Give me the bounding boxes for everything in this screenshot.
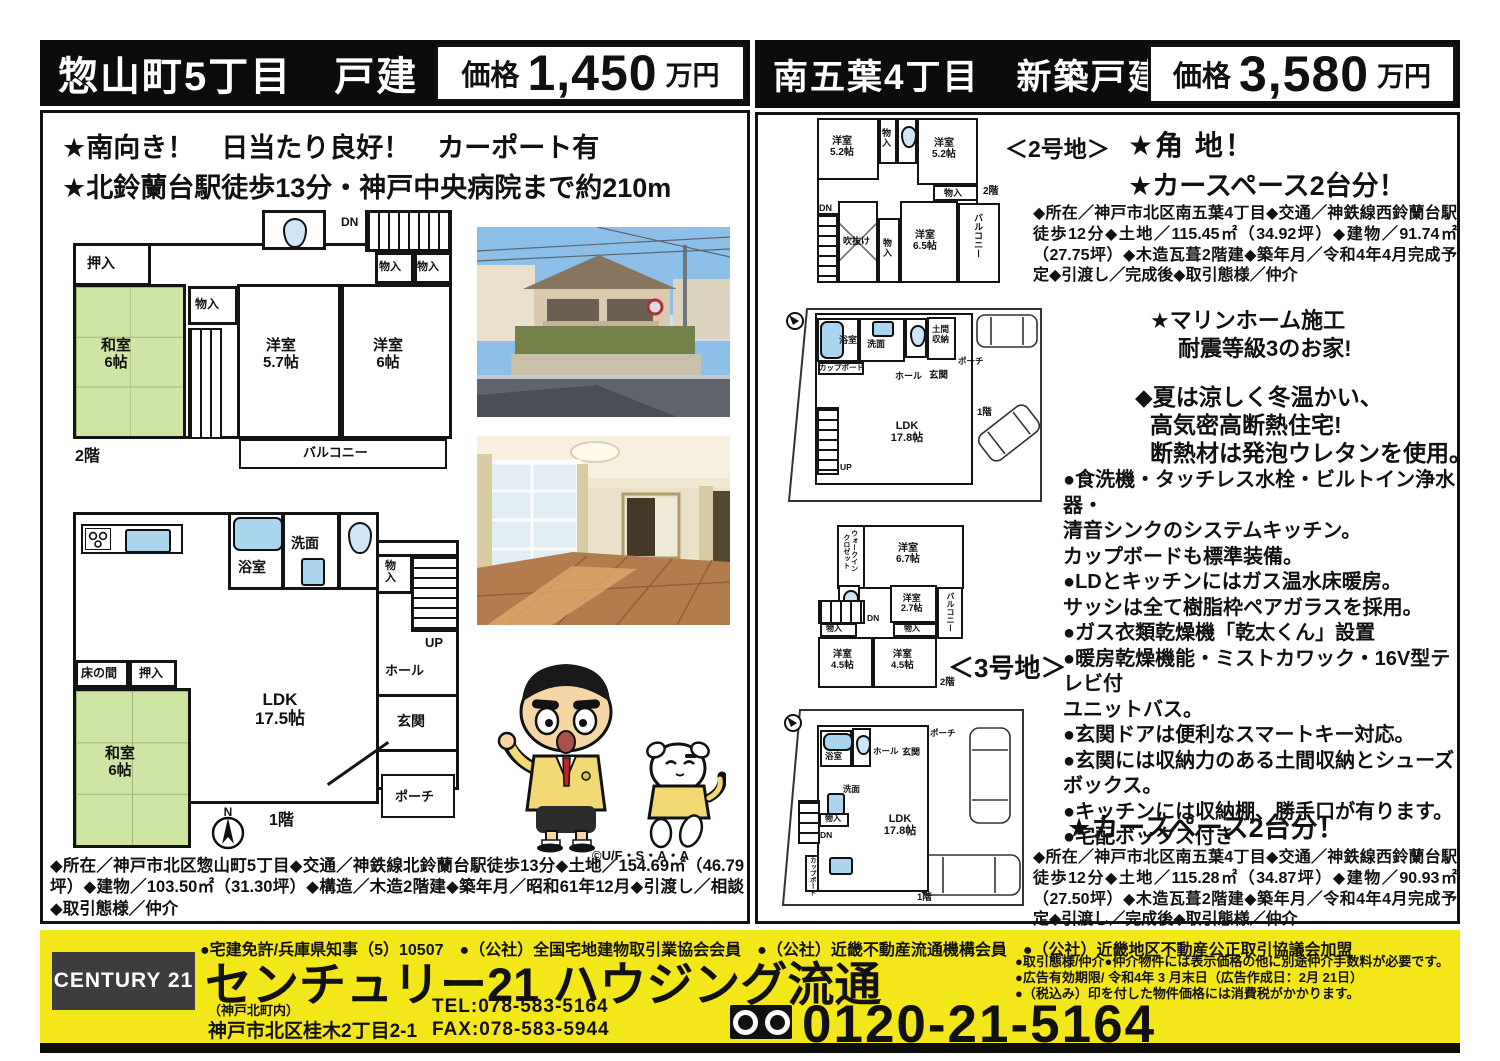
room-label: DN xyxy=(341,216,358,229)
room-label: 吹抜け xyxy=(843,236,870,246)
flyer-page: 惣山町5丁目 戸建 価格 1,450 万円 南五葉4丁目 新築戸建 価格 3,5… xyxy=(0,0,1500,1061)
stairs-up xyxy=(411,554,459,632)
room-label: 物入 xyxy=(904,625,920,634)
stairs-down xyxy=(798,800,820,844)
interior-photo xyxy=(477,436,730,625)
note-line: ●取引態様/仲介●仲介物件には表示価格の他に別途仲介手数料が必要です。 xyxy=(1015,954,1463,970)
room-label: 和室 6帖 xyxy=(101,338,131,372)
floor-tag: 1階 xyxy=(269,812,294,830)
right-property-title: 南五葉4丁目 新築戸建 xyxy=(755,49,1164,100)
right-price-label: 価格 xyxy=(1173,53,1231,95)
stove-icon xyxy=(85,528,111,550)
freedial-number: 0120-21-5164 xyxy=(802,994,1156,1055)
room-label: 洋室 6帖 xyxy=(373,338,403,372)
floor-tag: 1階 xyxy=(917,893,932,904)
stairs-up xyxy=(817,407,839,475)
room-label: バルコニー xyxy=(973,213,983,258)
feature-bullet-list: ●食洗機・タッチレス水栓・ビルトイン浄水器・ 清音シンクのシステムキッチン。 カ… xyxy=(1063,468,1463,851)
builder-line2: 耐震等級3のお家! xyxy=(1178,331,1352,363)
room-label: 洗面 xyxy=(867,339,885,349)
bullet-line: サッシは全て樹脂枠ペアガラスを採用。 xyxy=(1063,596,1463,622)
floorplan-lot3-1f: 浴室 ホール 玄関 ポーチ 洗面 物入 DN カップボード LDK 17.8帖 … xyxy=(775,705,1030,910)
office-address: 神戸市北区桂木2丁目2-1 xyxy=(208,1016,417,1043)
vanity-icon xyxy=(872,321,894,337)
room-label: ポーチ xyxy=(395,790,434,805)
stairs-hatch xyxy=(188,328,222,439)
room-label: 床の間 xyxy=(81,667,117,680)
century21-logo: CENTURY 21 xyxy=(52,952,195,1010)
note-line: ●広告有効期限/ 令和4年 3 月末日（広告作成日：2月 21日） xyxy=(1015,970,1463,986)
bullet-line: ●LDとキッチンにはガス温水床暖房。 xyxy=(1063,570,1463,596)
room-label: 洋室 5.2帖 xyxy=(830,136,854,158)
room-label: 玄関 xyxy=(397,714,425,730)
lot2-tag: ＜2号地＞ xyxy=(1005,130,1110,164)
room-label: 洋室 4.5帖 xyxy=(891,650,914,671)
room-label: ポーチ xyxy=(930,729,956,739)
room-label: ウォークイン クロゼット xyxy=(842,530,858,572)
floorplan-lot2-2f: 洋室 5.2帖 物 入 洋室 5.2帖 物入 2階 DN 吹抜け 物 入 洋室 … xyxy=(817,118,1007,288)
bullet-line: ●ガス衣類乾燥機「乾太くん」設置 xyxy=(1063,621,1463,647)
room-label: 洗面 xyxy=(843,785,860,795)
room-label: 物入 xyxy=(944,188,962,198)
left-price-box: 価格 1,450 万円 xyxy=(435,44,746,102)
room-label: 洋室 4.5帖 xyxy=(831,650,854,671)
room-label: バルコニー xyxy=(945,592,954,632)
stairs-down xyxy=(365,210,452,252)
bullet-line: ●玄関ドアは便利なスマートキー対応。 xyxy=(1063,723,1463,749)
stairs-down xyxy=(817,213,838,283)
mascot-characters xyxy=(486,648,726,853)
room-label: 物入 xyxy=(825,815,841,824)
room-label: 洋室 6.7帖 xyxy=(896,543,920,565)
freedial-icon xyxy=(730,1005,792,1039)
room-label: DN xyxy=(820,831,832,841)
lot3-tag: ＜3号地＞ xyxy=(948,648,1066,685)
floorplan-left-2f: DN 押入 和室 6帖 物入 洋室 5.7帖 洋室 6帖 物入 物入 バルコニー… xyxy=(73,210,459,472)
room-label: 物 入 xyxy=(385,560,396,585)
corner-lot-headline: ★角 地！ xyxy=(1128,124,1255,164)
bullet-line: ユニットバス。 xyxy=(1063,698,1463,724)
room-label: UP xyxy=(425,636,443,651)
room-label: ホール xyxy=(873,747,899,757)
floor-tag: 2階 xyxy=(75,448,100,466)
sink-icon xyxy=(829,857,853,875)
lot2-details: ◆所在／神戸市北区南五葉4丁目◆交通／神鉄線西鈴蘭台駅徒歩12分◆土地／115.… xyxy=(1033,204,1457,287)
bullet-line: ●暖房乾燥機能・ミストカワック・16V型テレビ付 xyxy=(1063,647,1463,698)
room-label: 物入 xyxy=(379,261,401,273)
fax-number: FAX:078-583-5944 xyxy=(432,1019,610,1041)
insulation-line3: 断熱材は発泡ウレタンを使用。 xyxy=(1150,434,1472,468)
room-label: 玄関 xyxy=(929,371,948,382)
right-price-box: 価格 3,580 万円 xyxy=(1148,44,1456,104)
room-label: 押入 xyxy=(139,667,163,680)
room-label: 物入 xyxy=(826,625,842,634)
right-price-value: 3,580 xyxy=(1239,45,1369,103)
floorplan-left-1f: 浴室 洗面 物 入 UP ホール 玄関 ポーチ 床の間 押入 和室 6帖 LDK… xyxy=(73,512,459,852)
left-feature-2: ★北鈴蘭台駅徒歩13分・神戸中央病院まで約210m xyxy=(62,166,671,205)
exterior-photo xyxy=(477,227,730,417)
room-label: UP xyxy=(840,463,852,473)
vanity-icon xyxy=(827,793,845,815)
left-feature-1: ★南向き！ 日当たり良好！ カーポート有 xyxy=(62,126,599,165)
floor-tag: 1階 xyxy=(977,408,992,419)
room-label: カップボード xyxy=(819,364,864,372)
room-label: 玄関 xyxy=(902,747,920,757)
bullet-line: カップボードも標準装備。 xyxy=(1063,545,1463,571)
floor-tag: 2階 xyxy=(983,186,999,197)
room-label: 土間 収納 xyxy=(932,325,949,344)
vanity-icon xyxy=(301,558,325,586)
room-label: LDK 17.8帖 xyxy=(870,813,930,838)
room-label: 物入 xyxy=(417,261,439,273)
bullet-line: ●食洗機・タッチレス水栓・ビルトイン浄水器・ xyxy=(1063,468,1463,519)
bathtub-icon xyxy=(233,517,283,551)
right-price-unit: 万円 xyxy=(1377,55,1431,94)
room-label: 浴室 xyxy=(825,752,842,762)
lot3-details: ◆所在／神戸市北区南五葉4丁目◆交通／神鉄線西鈴蘭台駅徒歩12分◆土地／115.… xyxy=(1033,848,1457,931)
carspace-headline: ★カースペース2台分！ xyxy=(1128,164,1406,203)
room-label: 洋室 2.7帖 xyxy=(901,593,923,613)
room-label: 洋室 5.7帖 xyxy=(263,338,299,372)
bullet-line: ●玄関には収納力のある土間収納とシューズ xyxy=(1063,749,1463,775)
left-price-label: 価格 xyxy=(461,52,519,94)
room-label: バルコニー xyxy=(303,446,368,461)
room-label: 物 入 xyxy=(882,128,891,148)
room-label: ポーチ xyxy=(958,357,984,367)
stairs-down xyxy=(818,600,865,624)
bullet-line: 清音シンクのシステムキッチン。 xyxy=(1063,519,1463,545)
room-label: 浴室 xyxy=(839,335,857,345)
room-label: DN xyxy=(867,614,879,624)
compass-icon: N xyxy=(208,804,248,852)
room-label: 押入 xyxy=(87,256,115,272)
room-label: 和室 6帖 xyxy=(105,746,135,780)
room-label: ホール xyxy=(385,664,424,679)
room-label: LDK 17.5帖 xyxy=(225,690,335,728)
room-label: ホール xyxy=(895,371,922,381)
room-label: カップボード xyxy=(808,857,815,896)
bullet-line: ボックス。 xyxy=(1063,774,1463,800)
left-property-details: ◆所在／神戸市北区惣山町5丁目◆交通／神鉄線北鈴蘭台駅徒歩13分◆土地／154.… xyxy=(50,856,744,920)
room-label: 洗面 xyxy=(291,536,319,552)
left-price-unit: 万円 xyxy=(666,54,720,93)
room-label: 物入 xyxy=(195,298,219,311)
room-label: 洋室 5.2帖 xyxy=(932,138,956,160)
floorplan-lot2-1f: 浴室 洗面 土間 収納 カップボード ホール 玄関 ポーチ UP LDK 17.… xyxy=(777,305,1045,505)
left-property-title: 惣山町5丁目 戸建 xyxy=(40,44,418,102)
bathtub-icon xyxy=(823,733,853,751)
tel-number: TEL:078-583-5164 xyxy=(432,996,609,1018)
left-price-value: 1,450 xyxy=(527,44,657,102)
room-label: LDK 17.8帖 xyxy=(877,420,937,445)
sink-icon xyxy=(125,529,171,553)
room-label: DN xyxy=(819,203,832,213)
room-label: 洋室 6.5帖 xyxy=(913,230,937,252)
room-label: 物 入 xyxy=(883,238,892,258)
room-label: 浴室 xyxy=(238,560,266,576)
carspace-headline-2: ★カースペース2台分！ xyxy=(1067,806,1345,845)
